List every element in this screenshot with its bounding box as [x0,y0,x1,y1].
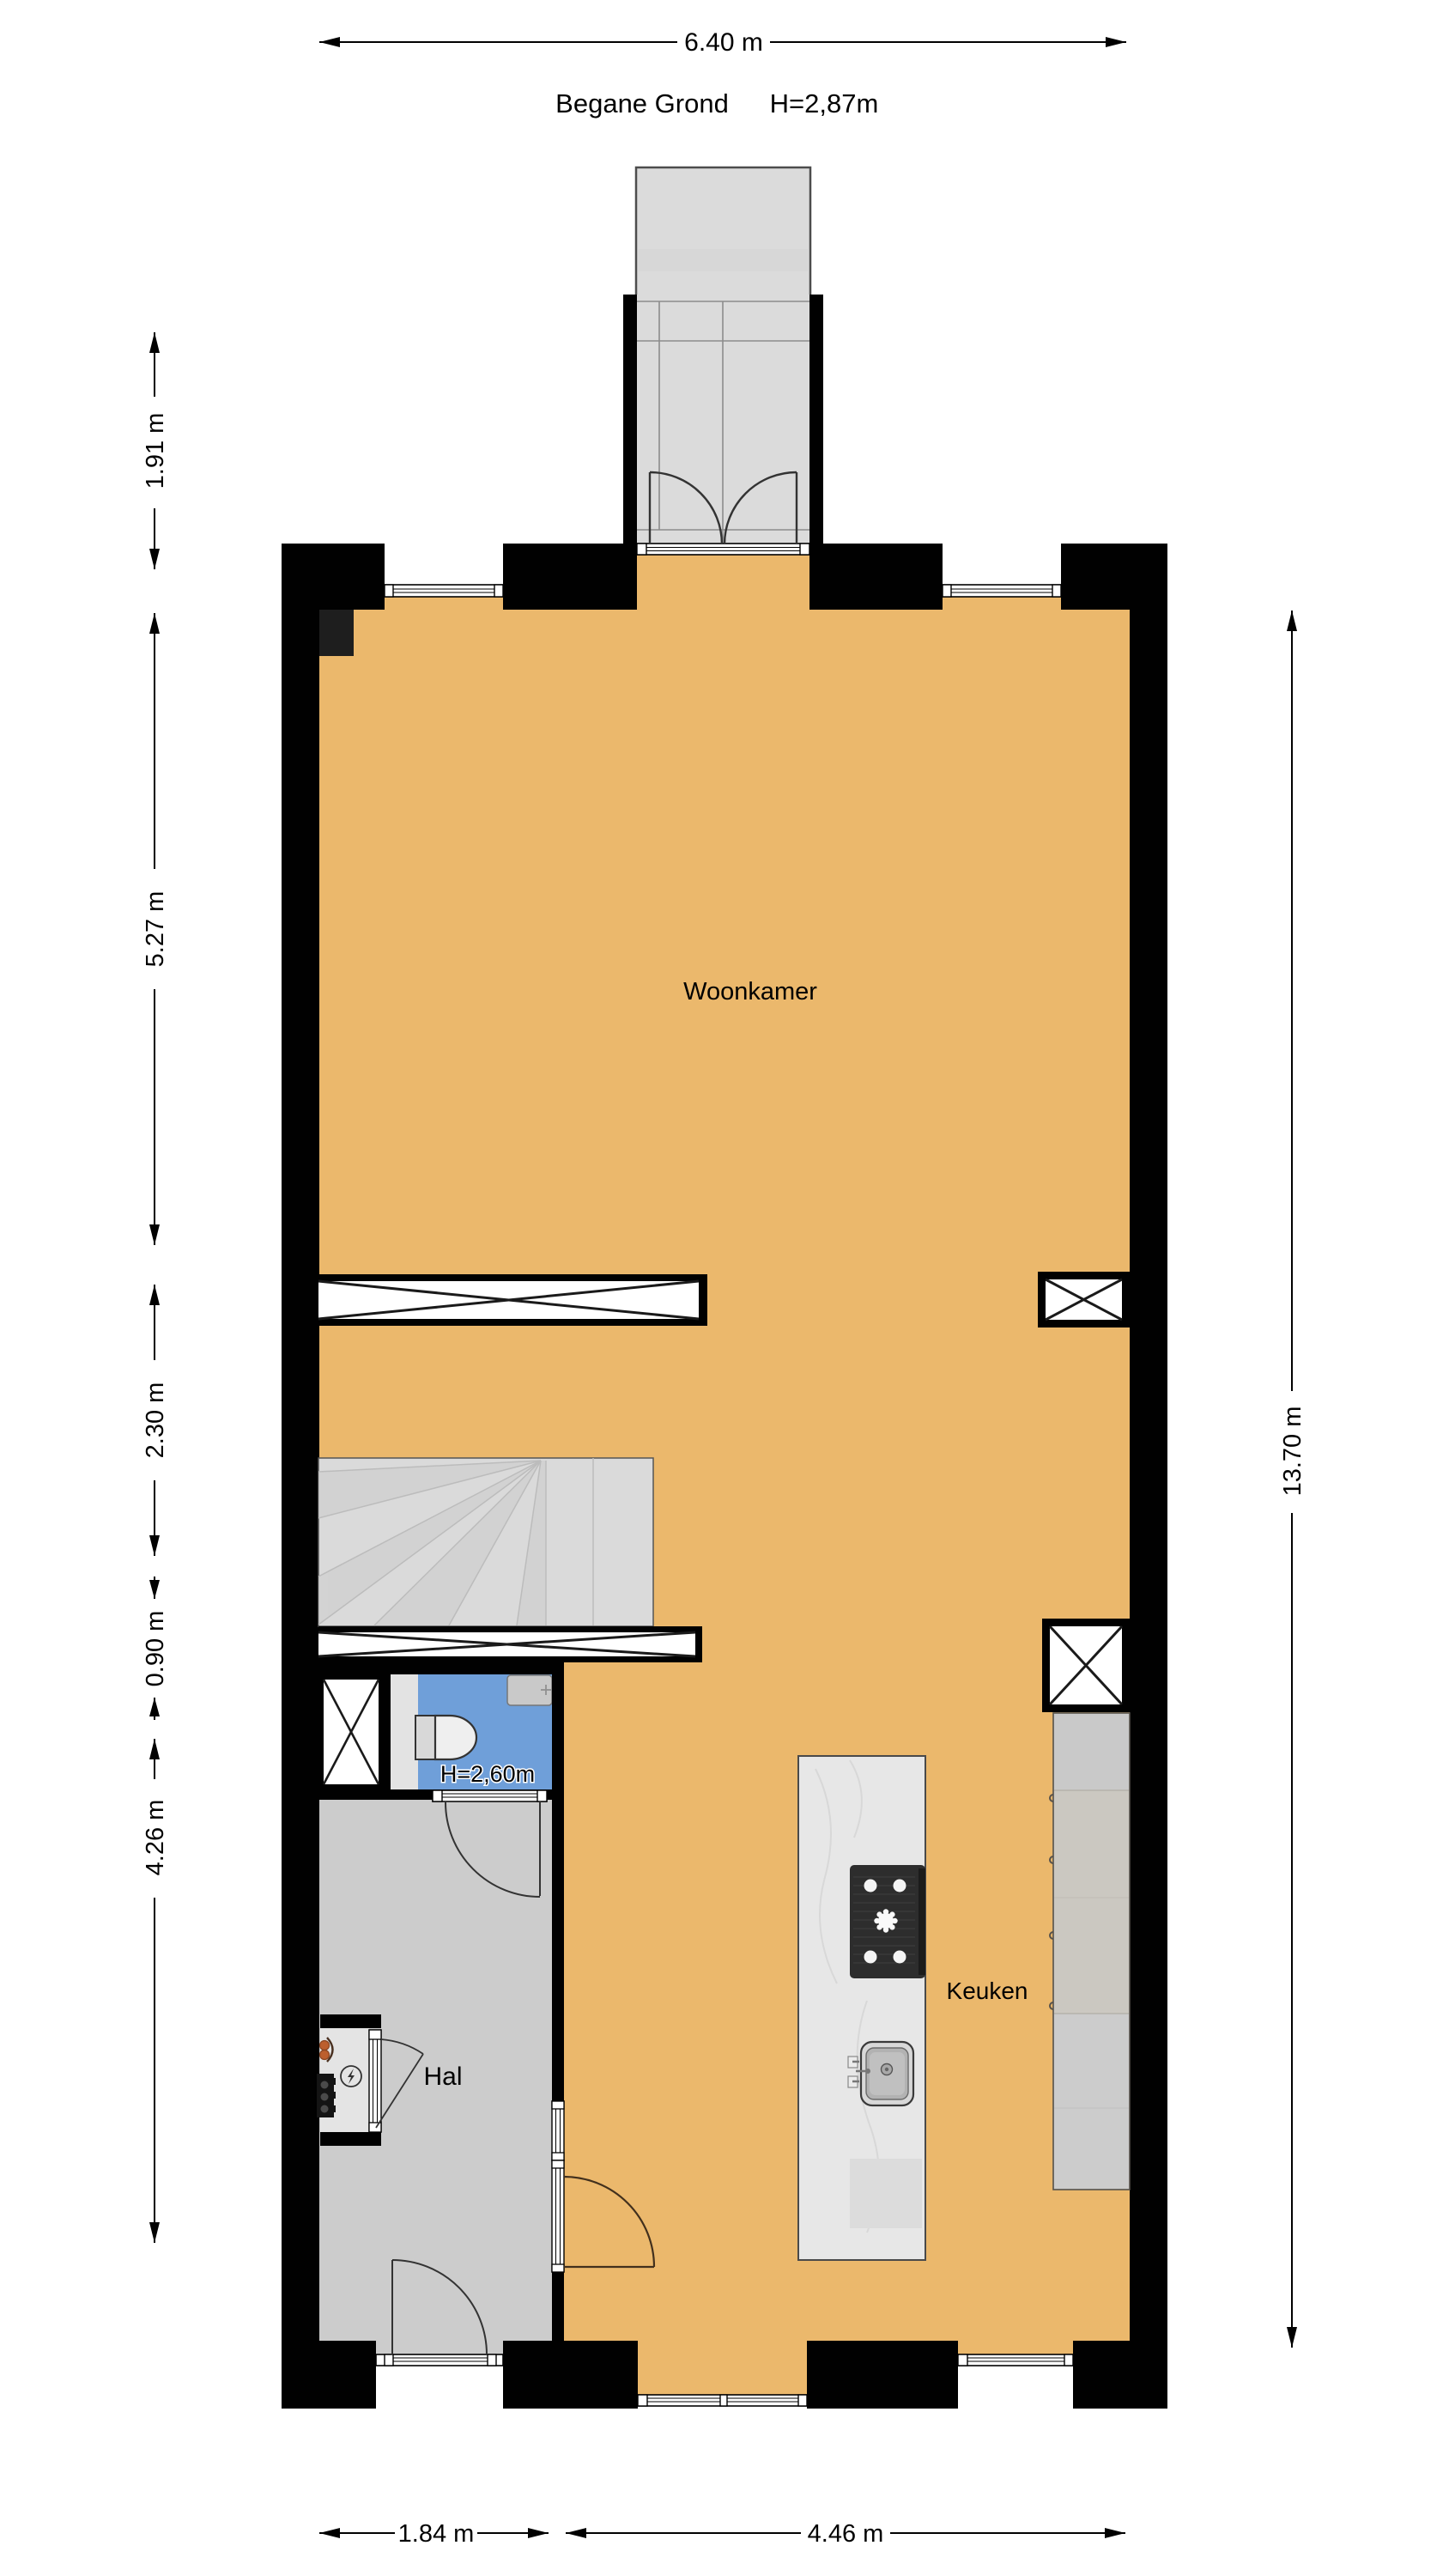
svg-text:4.26 m: 4.26 m [142,1800,169,1876]
svg-text:6.40 m: 6.40 m [684,28,763,57]
svg-text:Hal: Hal [423,2063,462,2091]
svg-text:Begane Grond: Begane Grond [555,88,729,118]
svg-text:Keuken: Keuken [947,1978,1028,2004]
svg-text:5.27 m: 5.27 m [142,891,169,968]
svg-text:4.46 m: 4.46 m [808,2520,884,2548]
svg-text:1.84 m: 1.84 m [398,2520,475,2548]
svg-text:H=2,60m: H=2,60m [440,1761,535,1787]
svg-text:1.91 m: 1.91 m [142,413,169,489]
svg-text:0.90 m: 0.90 m [142,1611,169,1687]
svg-text:H=2,87m: H=2,87m [770,88,879,118]
svg-text:13.70 m: 13.70 m [1279,1406,1307,1497]
svg-text:2.30 m: 2.30 m [142,1382,169,1459]
svg-text:Woonkamer: Woonkamer [683,978,817,1005]
